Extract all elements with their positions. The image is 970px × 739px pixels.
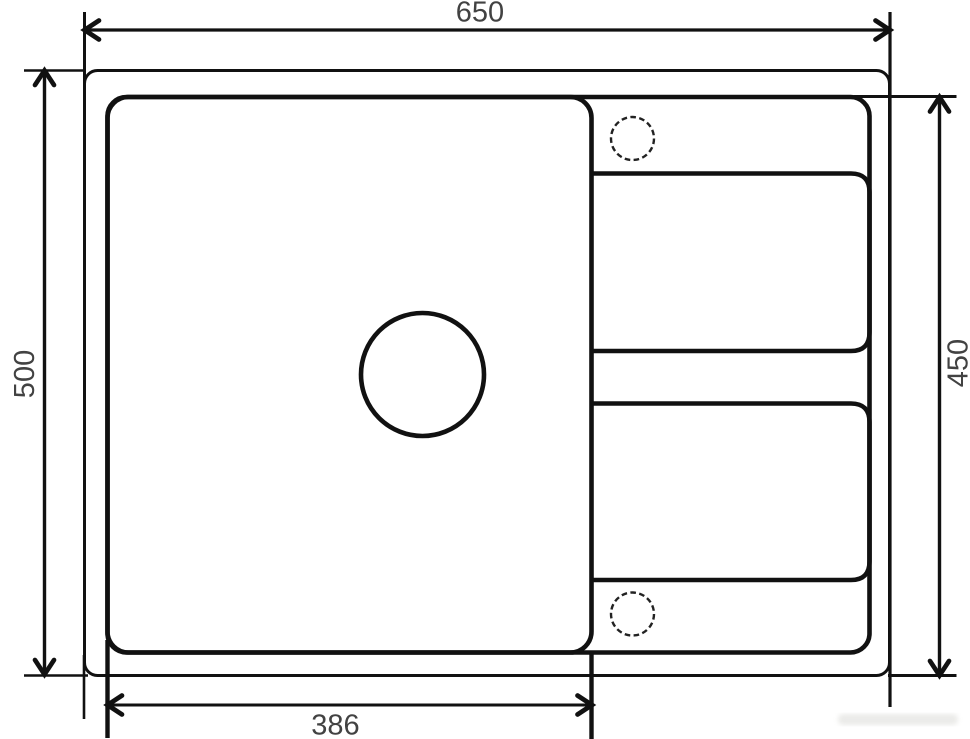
svg-text:450: 450	[943, 339, 970, 387]
svg-text:386: 386	[311, 710, 359, 739]
svg-text:650: 650	[456, 0, 504, 29]
svg-text:500: 500	[9, 350, 41, 398]
